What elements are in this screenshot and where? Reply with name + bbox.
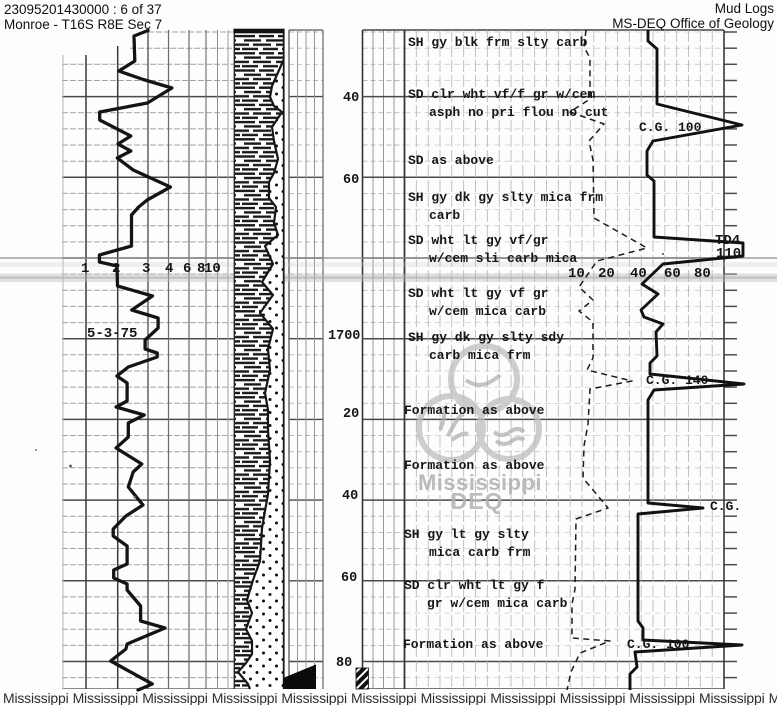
svg-text:10: 10 xyxy=(204,261,221,277)
svg-text:2: 2 xyxy=(112,261,120,277)
svg-text:60: 60 xyxy=(664,266,681,282)
svg-text:MS-DEQ Office of Geology: MS-DEQ Office of Geology xyxy=(612,16,774,31)
svg-text:Mississippi: Mississippi xyxy=(769,690,777,705)
svg-text:Mississippi: Mississippi xyxy=(281,690,347,705)
svg-text:20: 20 xyxy=(343,407,359,422)
svg-text:Mississippi: Mississippi xyxy=(421,690,487,705)
svg-text:60: 60 xyxy=(341,571,357,586)
svg-text:110: 110 xyxy=(716,246,741,262)
svg-text:Mississippi: Mississippi xyxy=(3,690,69,705)
svg-text:6: 6 xyxy=(183,261,191,277)
svg-text:C.G. 140: C.G. 140 xyxy=(646,373,709,388)
svg-text:SD wht lt gy vf gr: SD wht lt gy vf gr xyxy=(408,286,548,301)
svg-text:SD clr wht vf/f gr w/cem: SD clr wht vf/f gr w/cem xyxy=(408,87,595,102)
svg-text:carb: carb xyxy=(429,208,460,223)
svg-text:80: 80 xyxy=(694,266,711,282)
svg-text:SD as above: SD as above xyxy=(408,153,494,168)
svg-text:Mississippi: Mississippi xyxy=(629,690,695,705)
svg-text:4: 4 xyxy=(165,261,173,277)
svg-text:Mississippi: Mississippi xyxy=(699,690,765,705)
svg-text:SH gy dk gy slty mica frm: SH gy dk gy slty mica frm xyxy=(408,190,603,205)
svg-text:Formation as above: Formation as above xyxy=(404,458,545,473)
svg-text:10: 10 xyxy=(568,266,585,282)
svg-text:Mississippi: Mississippi xyxy=(73,690,139,705)
svg-text:Monroe - T16S R8E Sec 7: Monroe - T16S R8E Sec 7 xyxy=(4,17,162,32)
svg-text:1: 1 xyxy=(81,261,89,277)
svg-text:3: 3 xyxy=(142,261,150,277)
svg-text:Mississippi: Mississippi xyxy=(490,690,556,705)
svg-text:Mississippi: Mississippi xyxy=(351,690,417,705)
svg-text:SD clr wht lt gy f: SD clr wht lt gy f xyxy=(404,578,545,593)
svg-text:mica carb frm: mica carb frm xyxy=(429,545,531,560)
svg-text:Formation as above: Formation as above xyxy=(404,403,545,418)
svg-text:Mississippi: Mississippi xyxy=(212,690,278,705)
svg-text:C.G. 100: C.G. 100 xyxy=(627,637,690,652)
svg-text:40: 40 xyxy=(630,266,647,282)
svg-text:w/cem sli carb mica: w/cem sli carb mica xyxy=(429,251,577,266)
svg-text:20: 20 xyxy=(598,266,615,282)
svg-text:carb mica frm: carb mica frm xyxy=(429,348,531,363)
svg-text:SH gy blk frm slty carb: SH gy blk frm slty carb xyxy=(408,35,588,50)
svg-text:Formation as above: Formation as above xyxy=(403,637,544,652)
svg-text:SH gy lt gy slty: SH gy lt gy slty xyxy=(404,527,529,542)
svg-text:Mississippi: Mississippi xyxy=(560,690,626,705)
svg-text:DEQ: DEQ xyxy=(451,488,504,514)
svg-text:5-3-75: 5-3-75 xyxy=(87,326,137,342)
svg-text:80: 80 xyxy=(336,656,352,671)
svg-text:SD wht lt gy vf/gr: SD wht lt gy vf/gr xyxy=(408,233,548,248)
svg-text:40: 40 xyxy=(342,489,358,504)
svg-text:23095201430000 : 6 of 37: 23095201430000 : 6 of 37 xyxy=(4,2,162,17)
svg-text:C.G.: C.G. xyxy=(710,499,741,514)
svg-text:40: 40 xyxy=(343,91,359,106)
svg-text:Mississippi: Mississippi xyxy=(142,690,208,705)
svg-text:C.G. 100: C.G. 100 xyxy=(639,120,702,135)
svg-text:SH gy dk gy slty sdy: SH gy dk gy slty sdy xyxy=(408,330,564,345)
svg-text:w/cem mica carb: w/cem mica carb xyxy=(429,304,546,319)
svg-text:1700: 1700 xyxy=(328,329,360,344)
svg-text:asph no pri flou no cut: asph no pri flou no cut xyxy=(429,105,608,120)
svg-text:Mud Logs: Mud Logs xyxy=(715,1,775,16)
svg-text:gr w/cem mica carb: gr w/cem mica carb xyxy=(427,596,568,611)
svg-text:60: 60 xyxy=(343,173,359,188)
